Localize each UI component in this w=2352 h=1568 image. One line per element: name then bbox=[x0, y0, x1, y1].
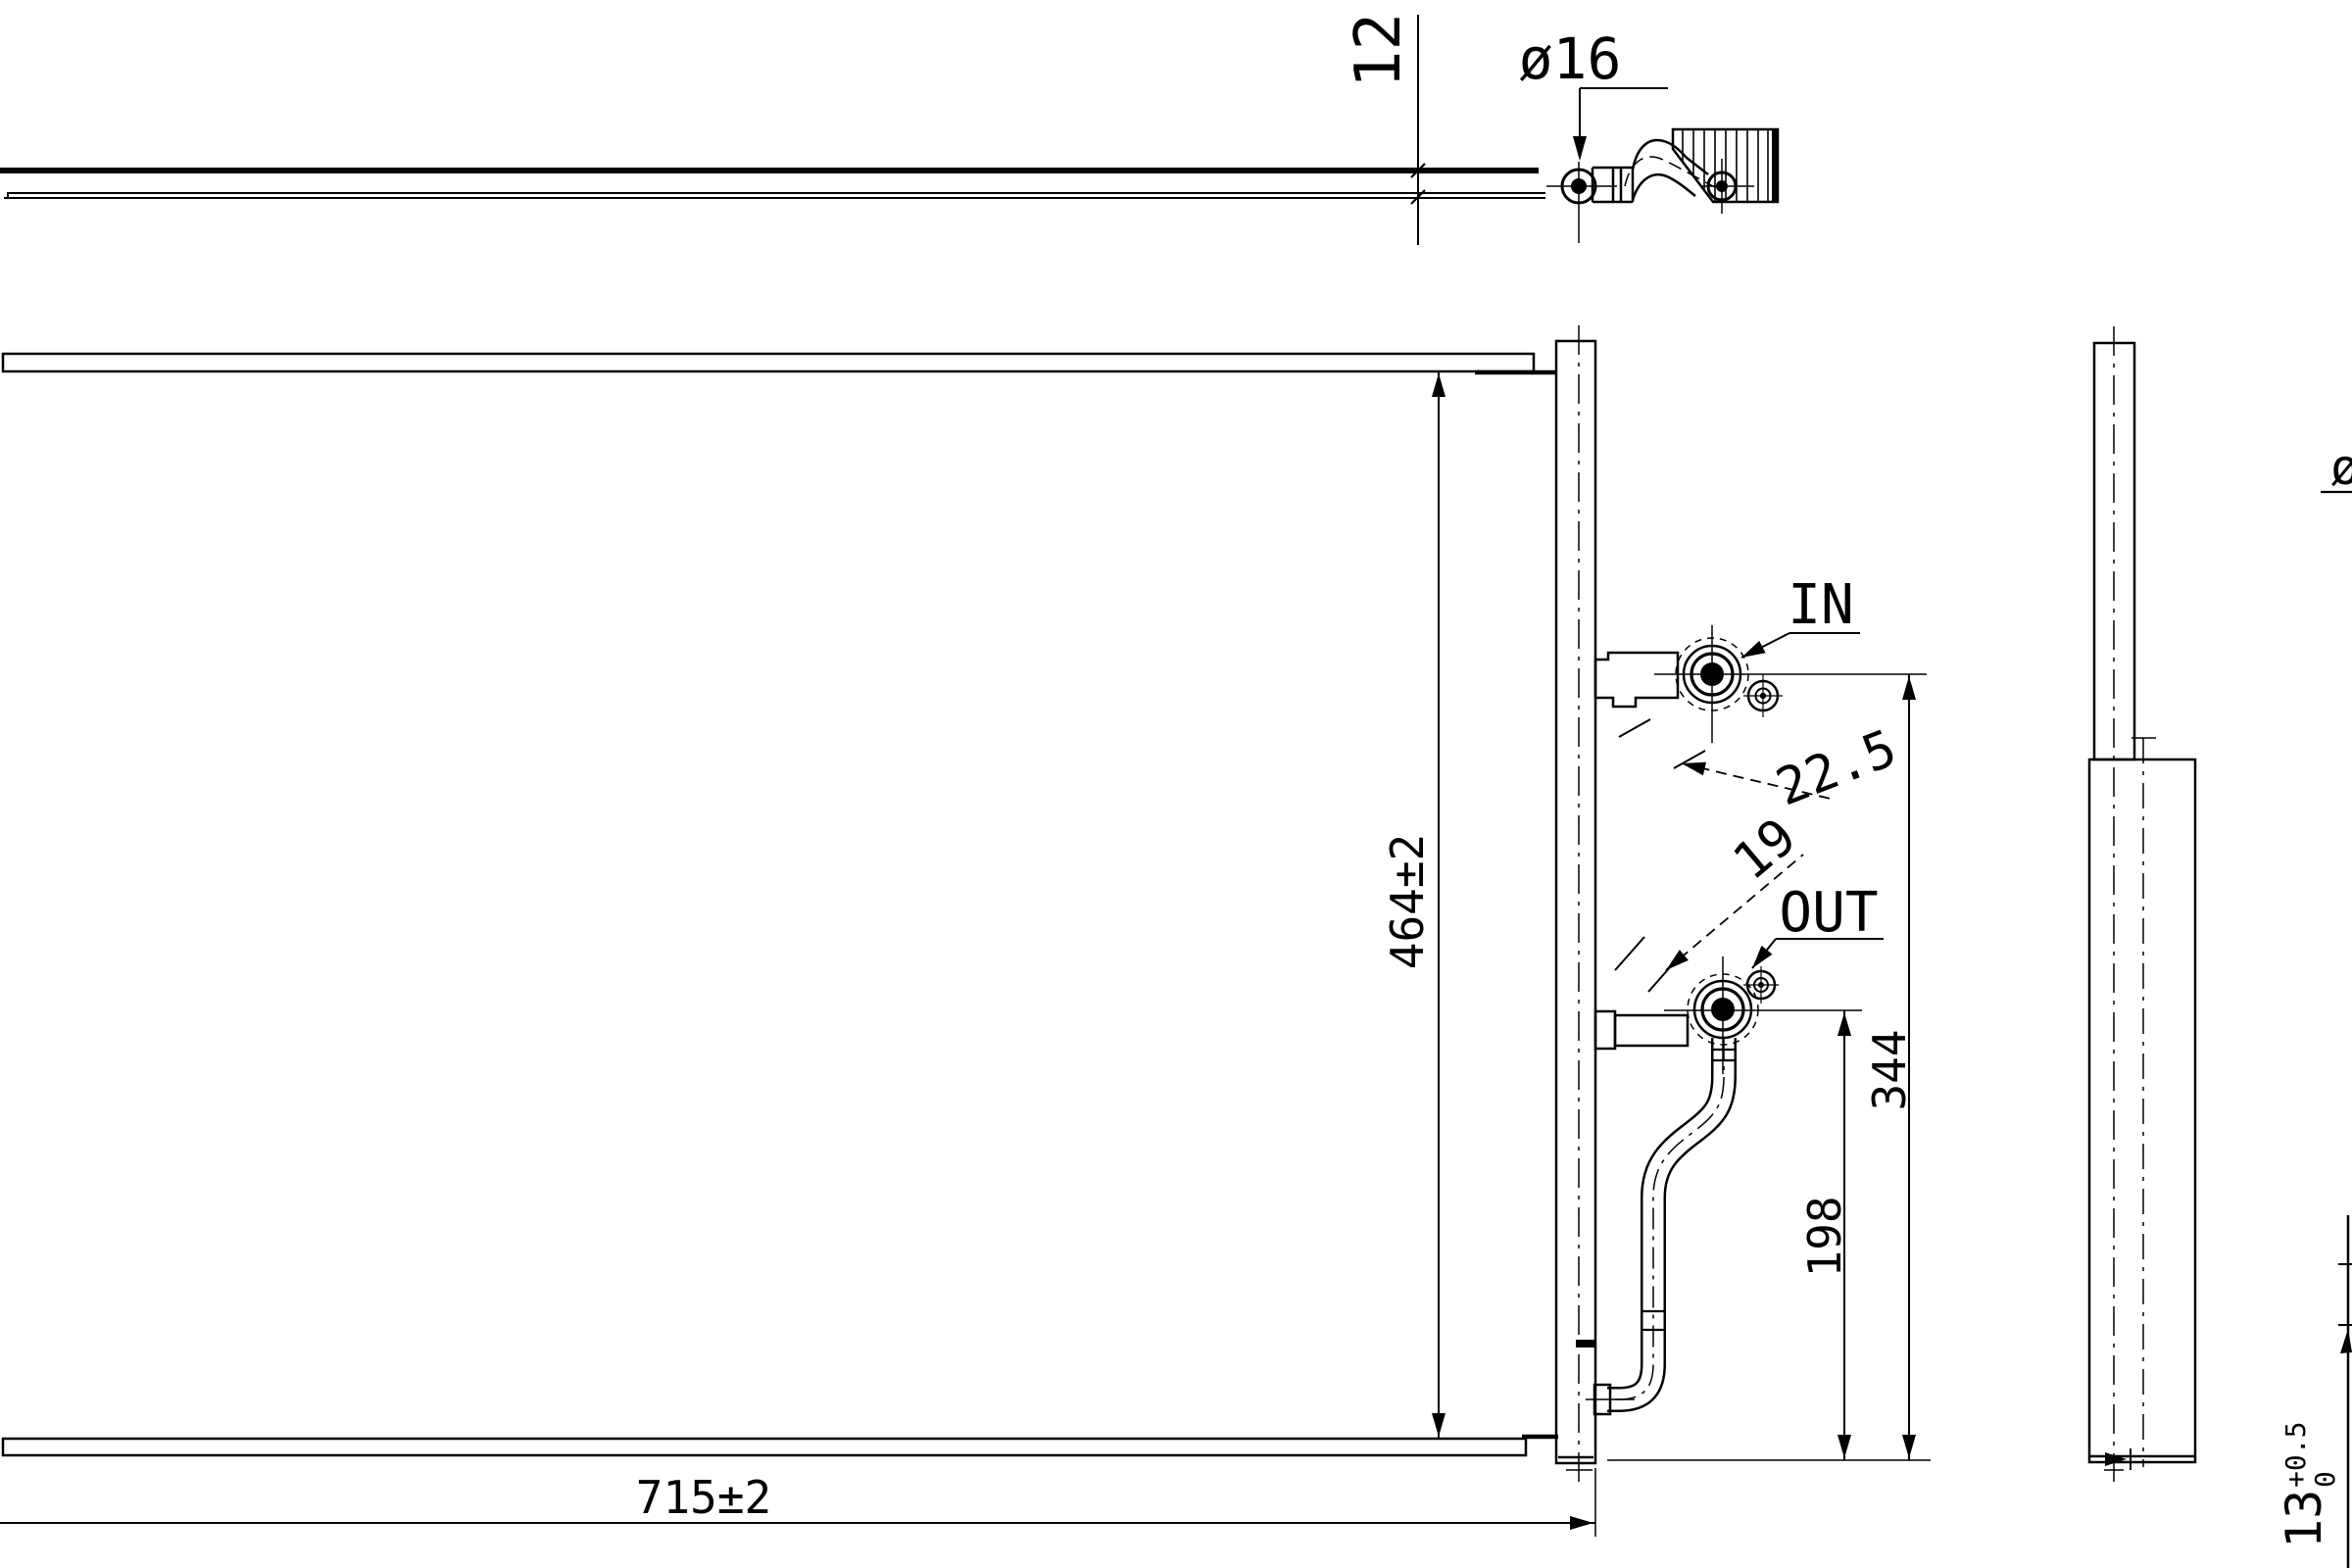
front-view: IN 22.5 OUT 19 bbox=[0, 325, 1931, 1537]
outlet-label: OUT bbox=[1779, 881, 1878, 945]
depth-dim-arrow bbox=[2340, 1329, 2352, 1353]
inlet-bracket bbox=[1595, 653, 1678, 707]
top-view-pipe-centerline bbox=[1625, 157, 1715, 187]
dim-dia16: ø16 bbox=[1519, 25, 1668, 161]
dim-13-tolerance: 13 +0.5 0 bbox=[2276, 1422, 2341, 1548]
dim-19-label: 19 bbox=[1723, 808, 1808, 892]
side-view-bottom-arrow bbox=[2105, 1452, 2127, 1466]
dim-13-tol-upper: +0.5 bbox=[2279, 1422, 2312, 1488]
dim-344: 344 bbox=[1863, 674, 1916, 1460]
dim-dia16-label: ø16 bbox=[1519, 25, 1622, 92]
top-view-pipe-lower-outline bbox=[1633, 174, 1695, 200]
inlet-fitting bbox=[1654, 625, 1927, 743]
header-tank bbox=[1556, 341, 1595, 1463]
bottom-side-plate bbox=[3, 1439, 1526, 1455]
top-view-pipe-upper-outline bbox=[1633, 140, 1708, 174]
dim-13-label: 13 bbox=[2276, 1490, 2332, 1548]
outlet-fitting bbox=[1664, 956, 1862, 1074]
dim-12: 12 bbox=[1343, 13, 1425, 245]
top-view: 12 ø16 bbox=[0, 13, 1778, 245]
outlet-bracket-flange bbox=[1595, 1011, 1615, 1049]
dim-198: 198 bbox=[1798, 1010, 1851, 1460]
clipped-diameter-label: ø bbox=[2330, 439, 2352, 496]
dim-715-label: 715±2 bbox=[636, 1471, 771, 1524]
inlet-label: IN bbox=[1788, 573, 1853, 637]
dim-464-label: 464±2 bbox=[1381, 834, 1434, 969]
top-side-plate bbox=[3, 354, 1534, 371]
dim-22-5: 22.5 bbox=[1619, 719, 1904, 818]
dim-13-tol-lower: 0 bbox=[2309, 1471, 2341, 1488]
right-edge-annotations: ø 13 +0.5 0 bbox=[2276, 439, 2352, 1568]
outlet-bracket-arm bbox=[1615, 1015, 1688, 1046]
dim-344-label: 344 bbox=[1863, 1029, 1916, 1110]
outlet-callout: OUT bbox=[1752, 881, 1884, 968]
side-view-lower-section bbox=[2089, 759, 2195, 1462]
side-view bbox=[2089, 326, 2195, 1482]
inlet-callout: IN bbox=[1741, 573, 1860, 658]
dim-198-label: 198 bbox=[1798, 1196, 1851, 1277]
dim-715: 715±2 bbox=[0, 1468, 1595, 1537]
engineering-drawing: 12 ø16 bbox=[0, 0, 2352, 1568]
outlet-pipe bbox=[1586, 1038, 1736, 1414]
top-view-bolt-fitting bbox=[1700, 159, 1754, 214]
dim-464: 464±2 bbox=[1381, 372, 1445, 1438]
dim-22-5-label: 22.5 bbox=[1769, 719, 1904, 818]
dim-12-label: 12 bbox=[1343, 13, 1415, 88]
